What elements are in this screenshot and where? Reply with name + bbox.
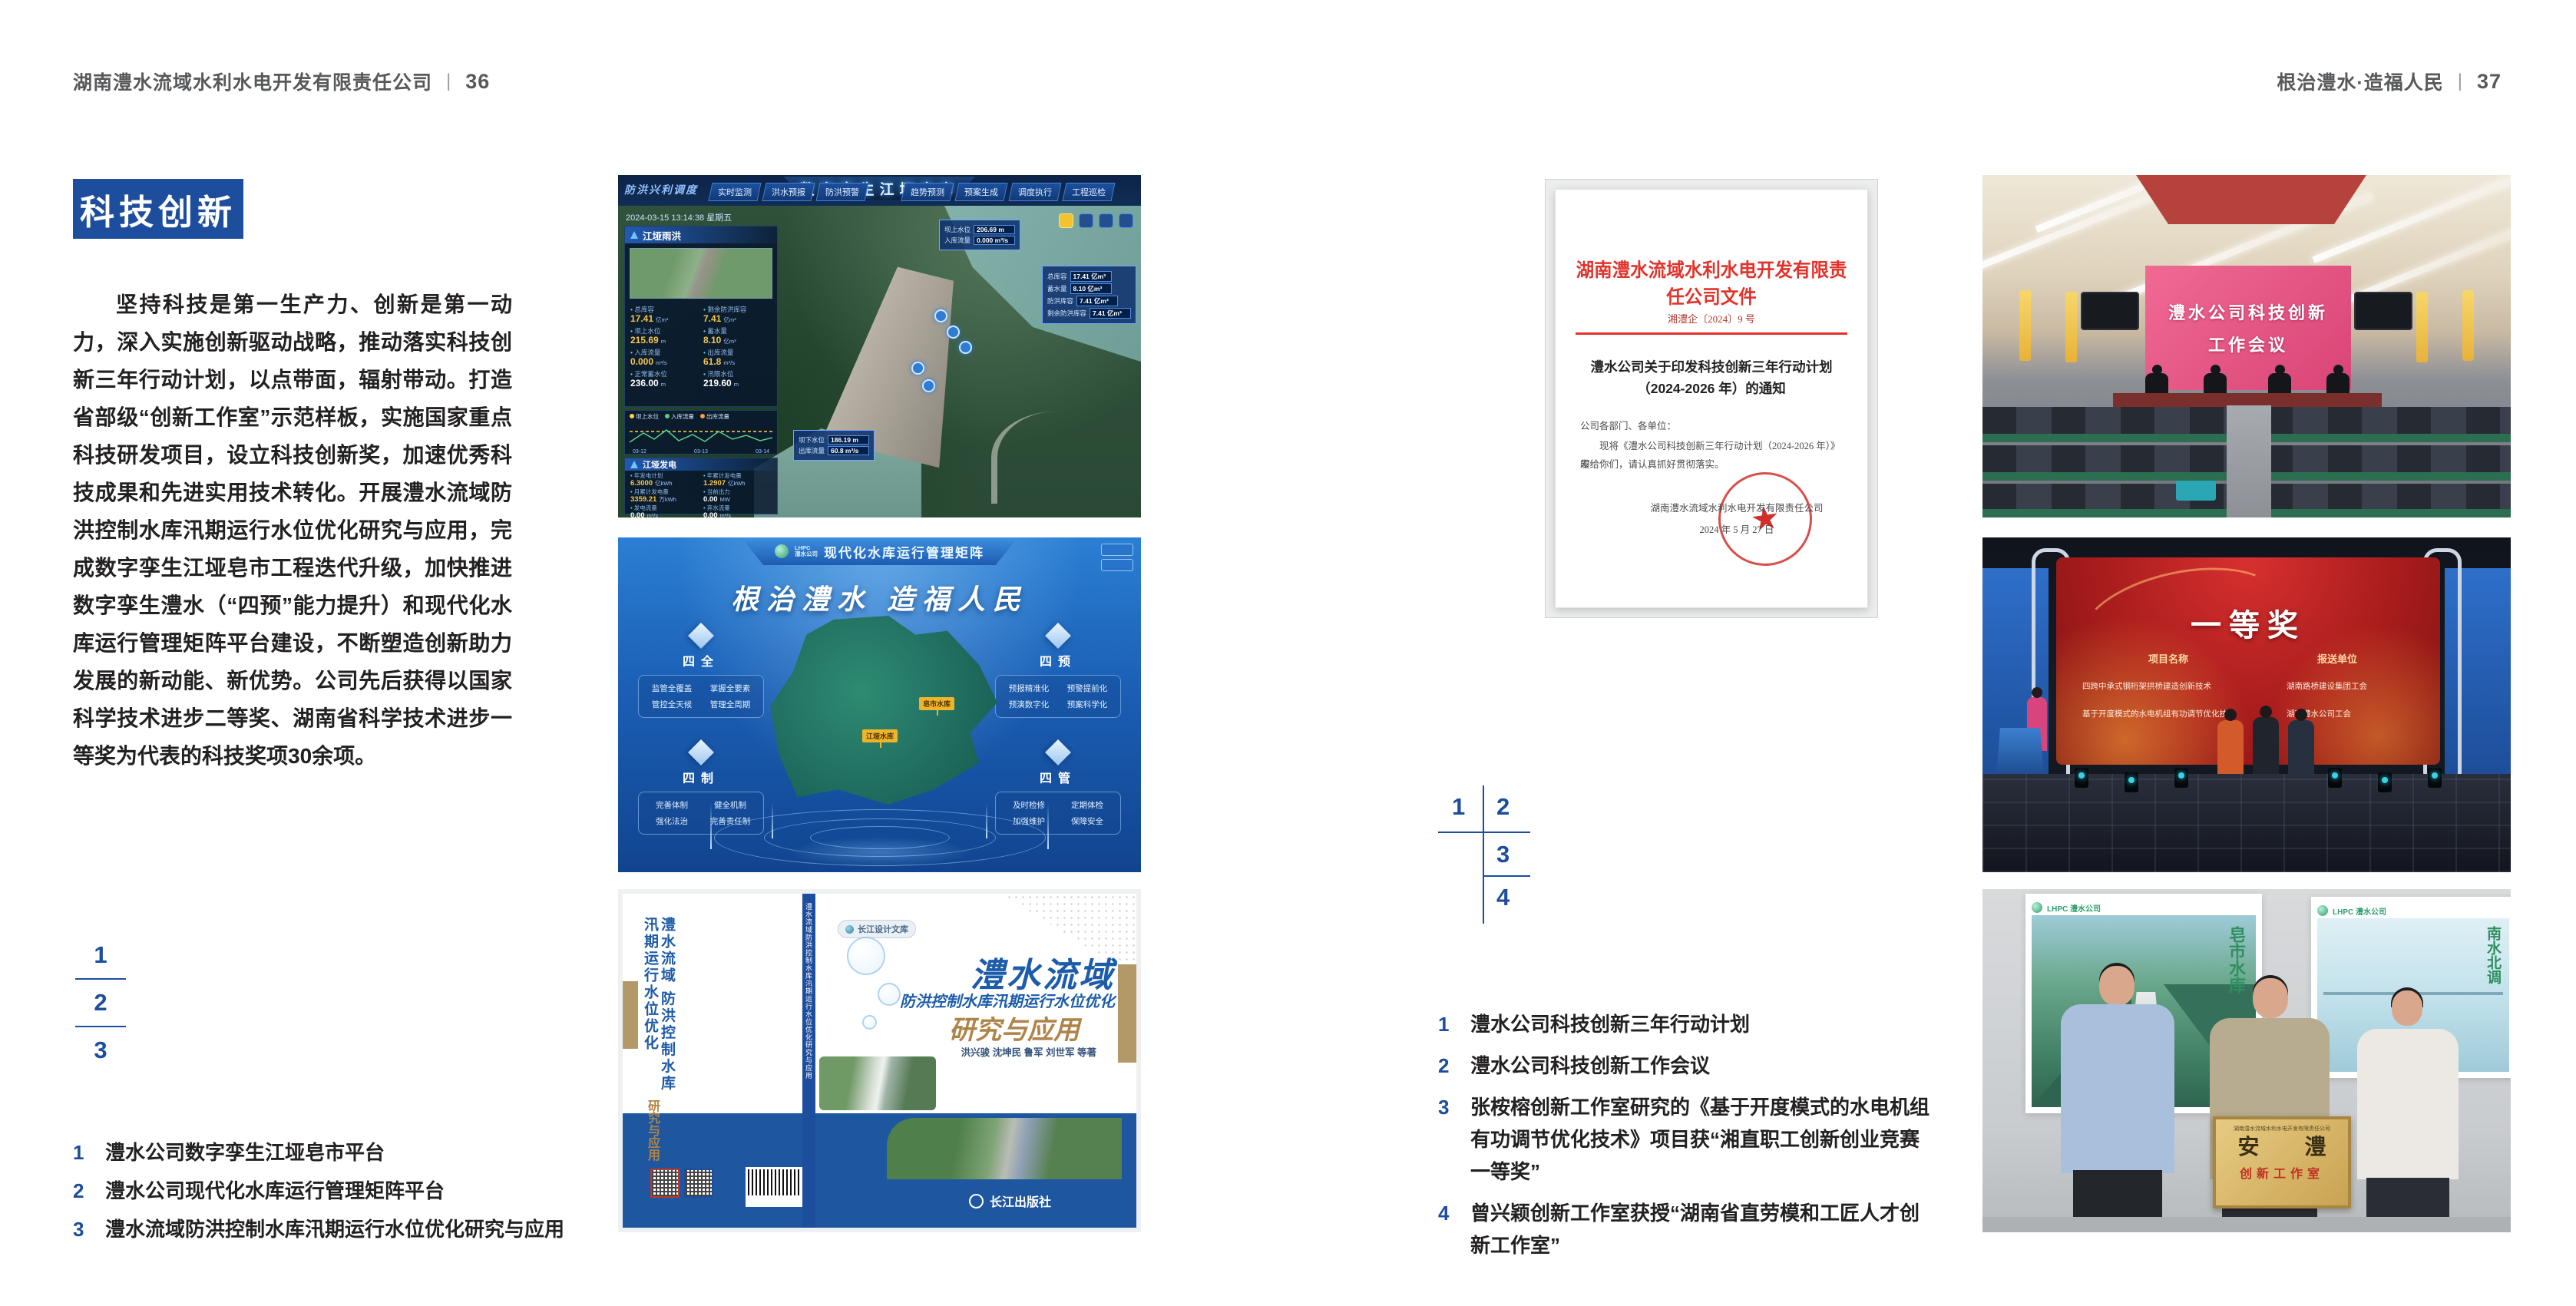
person-head: [2099, 966, 2135, 1006]
caption-text: 曾兴颖创新工作室获授“湖南省直劳模和工匠人才创新工作室”: [1470, 1197, 1930, 1261]
notice-title-line1: 澧水公司关于印发科技创新三年行动计划: [1556, 357, 1867, 376]
figure-index-number: 3: [1496, 841, 1510, 868]
tag-upstream-level: 坝上水位206.69 m 入库流量0.000 m³/s: [939, 220, 1020, 250]
index-divider-line: [1483, 875, 1530, 877]
gate-marker-icon: [934, 309, 947, 322]
person-silhouette: [2204, 373, 2227, 393]
led-screen: 一等奖 项目名称 报送单位 四跨中承式钢桁架拱桥建造创新技术 湖南路桥建设集团工…: [2056, 557, 2440, 765]
chart-x-labels: 03-1203-1303-14: [625, 449, 777, 455]
person-silhouette: [2326, 373, 2349, 393]
user-icon: [1059, 213, 1073, 228]
matrix-slogan: 根治澧水 造福人民: [618, 577, 1141, 617]
right-caption-list: 1 澧水公司科技创新三年行动计划 2 澧水公司科技创新工作会议 3 张桉榕创新工…: [1438, 1008, 1930, 1271]
matrix-group-siyu: 四预 预报精准化预警提前化 预演数字化预案科学化: [995, 627, 1121, 718]
stage-light: [2328, 768, 2342, 788]
plaque-title: 安 澧: [2216, 1132, 2348, 1163]
award-unit: 湖南路桥建设集团工会: [2287, 680, 2417, 692]
dam-photo: [819, 1056, 936, 1110]
salutation: 公司各部门、各单位：: [1580, 417, 1843, 435]
stat-cell: 月累计发电量3359.21万kWh: [630, 488, 699, 504]
stat-cell: 发电流量0.00m³/s: [630, 504, 699, 517]
figure-meeting-photo: 澧水公司科技创新 工作会议: [1982, 175, 2511, 517]
caption-item: 3 张桉榕创新工作室研究的《基于开度模式的水电机组有功调节优化技术》项目获“湘直…: [1438, 1091, 1930, 1188]
plaque-subtitle: 创新工作室: [2216, 1163, 2348, 1182]
floor: [1982, 1217, 2511, 1232]
stat-cell: 总库容17.41亿m³: [630, 305, 699, 325]
wall-lamp: [2462, 290, 2474, 361]
figure-group-photo: LHPC 澧水公司 皂市水库 LHPC 澧水公司 南水北调: [1982, 889, 2511, 1232]
wall-lamp: [2065, 292, 2077, 362]
tab-project-inspection: 工程巡检: [1062, 183, 1115, 201]
stage-light: [2428, 768, 2442, 788]
dashboard-right-tabs: 趋势预测 预案生成 调度执行 工程巡检: [903, 183, 1113, 201]
gate-marker-icon: [959, 341, 972, 354]
slogan-text: 根治澧水·造福人民: [2277, 68, 2443, 95]
panel-rain-flood: 江垭雨洪 总库容17.41亿m³ 剩余防洪库容7.41亿m³ 坝上水位215.6…: [624, 226, 778, 407]
back-cover-subtitle: 研究与应用: [643, 1099, 661, 1161]
column-unit: 报送单位: [2317, 651, 2357, 666]
qr-code: [650, 1169, 680, 1198]
rain-stats-grid: 总库容17.41亿m³ 剩余防洪库容7.41亿m³ 坝上水位215.69m 蓄水…: [625, 303, 777, 394]
stat-cell: 正常蓄水位236.00m: [630, 369, 699, 389]
figure-award-ceremony: 一等奖 项目名称 报送单位 四跨中承式钢桁架拱桥建造创新技术 湖南路桥建设集团工…: [1982, 537, 2511, 872]
person-left-body: [2061, 1004, 2174, 1173]
stat-cell: 当前出力0.00MW: [703, 488, 772, 504]
caption-number: 2: [1438, 1050, 1455, 1082]
matrix-header: LHPC澧水公司 现代化水库运行管理矩阵: [742, 537, 1018, 565]
tab-flood-warning: 防洪预警: [815, 183, 868, 201]
tan-accent-block: [1118, 964, 1136, 1063]
stat-cell: 入库流量0.000m³/s: [630, 348, 699, 368]
figure-index-right: 1 2 3 4: [1438, 785, 1530, 924]
barcode: [746, 1167, 804, 1207]
publisher-row: 长江出版社: [914, 1192, 1106, 1210]
awardee-suit: [2253, 717, 2279, 782]
toolbar-button: [1101, 544, 1133, 556]
award-title: 一等奖: [2056, 600, 2440, 645]
caption-text: 澧水公司现代化水库运行管理矩阵平台: [105, 1179, 445, 1202]
power-stats-grid: 年发电计划6.3000亿kWh 年累计发电量1.2907亿kWh 月累计发电量3…: [625, 471, 777, 517]
dashboard-corner-label: 防洪兴利调度: [624, 182, 698, 197]
light-pillar: [986, 803, 987, 838]
index-divider-line: [1438, 832, 1530, 833]
book-subtitle: 防洪控制水库汛期运行水位优化: [868, 989, 1115, 1011]
tag-downstream-level: 坝下水位186.19 m 出库流量60.8 m³/s: [793, 430, 875, 461]
company-logo-icon: [775, 544, 789, 558]
section-title: 科技创新: [73, 179, 243, 239]
wall-tv: [2354, 292, 2412, 330]
caption-number: 1: [73, 1141, 90, 1164]
map-label-zaoshi: 皂市水库: [919, 697, 954, 710]
body-paragraph: 坚持科技是第一生产力、创新是第一动力，深入实施创新驱动战略，推动落实科技创新三年…: [73, 286, 512, 775]
toolbar-button: [1101, 559, 1133, 571]
caption-text: 澧水流域防洪控制水库汛期运行水位优化研究与应用: [105, 1218, 564, 1241]
center-aisle: [2227, 405, 2271, 517]
figure-digital-twin-dashboard: 防洪兴利调度 数字孪生江垭皂市 实时监测 洪水预报 防洪预警 趋势预测 预案生成…: [618, 175, 1141, 517]
qr-code: [684, 1169, 713, 1198]
left-running-header: 湖南澧水流域水利水电开发有限责任公司 | 36: [73, 68, 490, 95]
index-divider-line: [75, 1026, 126, 1027]
person-silhouette: [2145, 373, 2168, 393]
document-number: 湘澧企〔2024〕9 号: [1556, 311, 1867, 326]
panel-title: 江垭雨洪: [625, 226, 777, 243]
left-caption-list: 1 澧水公司数字孪生江垭皂市平台 2 澧水公司现代化水库运行管理矩阵平台 3 澧…: [73, 1141, 564, 1256]
stage-floor: [1982, 774, 2511, 872]
maintenance-icon: [1045, 739, 1071, 765]
map-label-jiangya: 江垭水库: [862, 729, 898, 742]
press-logo-icon: [845, 925, 854, 934]
index-divider-line: [1483, 785, 1484, 924]
brochure-spread: 湖南澧水流域水利水电开发有限责任公司 | 36 根治澧水·造福人民 | 37 科…: [0, 0, 2576, 1306]
series-badge: 长江设计文库: [838, 920, 916, 938]
red-rule: [1576, 332, 1847, 335]
tab-dispatch-execution: 调度执行: [1008, 183, 1061, 201]
company-logo-icon: [2032, 902, 2042, 913]
matrix-title: 现代化水库运行管理矩阵: [824, 542, 984, 561]
company-name: 湖南澧水流域水利水电开发有限责任公司: [73, 68, 432, 95]
forecast-icon: [1045, 623, 1071, 649]
dashboard-left-tabs: 实时监测 洪水预报 防洪预警: [710, 183, 867, 201]
panel-title: 江垭发电: [625, 458, 777, 471]
screen-title-line2: 工作会议: [2208, 332, 2288, 356]
poster-logo-row: LHPC 澧水公司: [2032, 900, 2256, 915]
person-right-body: [2357, 1029, 2459, 1179]
ceiling-red-panel: [2136, 175, 2366, 224]
sign-date: 2024 年 5 月 27 日: [1625, 521, 1849, 536]
award-project: 四跨中承式钢桁架拱桥建造创新技术: [2082, 680, 2259, 692]
figure-index-number: 2: [1496, 793, 1510, 821]
settings-icon: [1119, 213, 1133, 228]
wall-lamp: [2416, 292, 2428, 362]
locate-icon: [1099, 213, 1113, 228]
figure-index-number: 1: [75, 940, 126, 970]
person-silhouette: [2268, 373, 2291, 393]
poster-calligraphy: 皂市水库: [2224, 926, 2248, 994]
caption-item: 2 澧水公司现代化水库运行管理矩阵平台: [73, 1179, 564, 1202]
person-head: [2253, 978, 2288, 1018]
caption-text: 张桉榕创新工作室研究的《基于开度模式的水电机组有功调节优化技术》项目获“湘直职工…: [1470, 1091, 1930, 1188]
caption-item: 1 澧水公司科技创新三年行动计划: [1438, 1008, 1930, 1040]
figure-index-number: 2: [75, 987, 126, 1018]
stage-light: [2174, 768, 2188, 788]
wall-tv: [2081, 292, 2139, 330]
caption-number: 4: [1438, 1197, 1455, 1261]
page-number-left: 36: [465, 70, 490, 94]
publisher-logo-icon: [969, 1194, 984, 1208]
screen-title-line1: 澧水公司科技创新: [2168, 299, 2328, 324]
right-running-header: 根治澧水·造福人民 | 37: [2277, 68, 2502, 95]
tissue-box: [2176, 481, 2216, 501]
stat-cell: 弃水流量0.00m³/s: [703, 504, 772, 517]
stat-cell: 年发电计划6.3000亿kWh: [630, 471, 699, 488]
stat-cell: 蓄水量8.10亿m³: [703, 326, 772, 346]
dam-photo-green: [887, 1118, 1122, 1179]
caption-text: 澧水公司数字孪生江垭皂市平台: [105, 1141, 385, 1164]
legend-item: 坝上水位: [630, 412, 659, 421]
index-divider-line: [75, 978, 126, 980]
document-page: 湖南澧水流域水利水电开发有限责任公司文件 湘澧企〔2024〕9 号 澧水公司关于…: [1555, 189, 1868, 608]
dam-thumbnail: [630, 248, 772, 299]
figure-index-number: 1: [1452, 793, 1465, 821]
header-divider: |: [446, 71, 451, 92]
plaque-organization: 湖南澧水流域水利水电开发有限责任公司: [2216, 1125, 2348, 1132]
stat-cell: 年累计发电量1.2907亿kWh: [703, 471, 772, 488]
legend-item: 出库流量: [700, 412, 729, 421]
legend-item: 入库流量: [665, 412, 694, 421]
stage-light: [2125, 772, 2138, 792]
figure-index-number: 3: [75, 1035, 126, 1066]
tab-flood-forecast: 洪水预报: [762, 183, 815, 201]
caption-item: 2 澧水公司科技创新工作会议: [1438, 1050, 1930, 1082]
caption-text: 澧水公司科技创新工作会议: [1470, 1050, 1710, 1082]
body-line: 发给你们，请认真抓好贯彻落实。: [1580, 455, 1843, 474]
gate-marker-icon: [947, 326, 960, 339]
caption-item: 3 澧水流域防洪控制水库汛期运行水位优化研究与应用: [73, 1218, 564, 1241]
column-project: 项目名称: [2148, 651, 2188, 666]
stage-light: [2378, 772, 2392, 792]
chart-legend: 坝上水位 入库流量 出库流量: [625, 411, 777, 422]
back-cover-title: 澧水流域 防洪控制水库汛期运行水位优化: [641, 917, 675, 1093]
figure-book-cover: 澧水流域 防洪控制水库汛期运行水位优化 研究与应用 澧水流域防洪控制水库汛期运行…: [618, 889, 1141, 1232]
projection-screen: 澧水公司科技创新 工作会议: [2145, 266, 2351, 390]
gate-marker-icon: [911, 362, 924, 375]
red-seal: [1712, 466, 1818, 572]
dashboard-icon-row: [1059, 213, 1133, 228]
person-head: [2392, 990, 2422, 1026]
light-pillar: [772, 803, 773, 838]
caption-item: 4 曾兴颖创新工作室获授“湖南省直劳模和工匠人才创新工作室”: [1438, 1197, 1930, 1261]
figure-index-number: 4: [1496, 884, 1510, 911]
stat-cell: 剩余防洪库容7.41亿m³: [703, 305, 772, 325]
company-logo-icon: [2317, 905, 2328, 916]
caption-number: 2: [73, 1179, 90, 1202]
watershed-map: [770, 616, 997, 805]
dashboard-timestamp: 2024-03-15 13:14:38 星期五: [626, 211, 732, 223]
light-pillar: [710, 803, 712, 849]
book-cover-sheet: 澧水流域 防洪控制水库汛期运行水位优化 研究与应用 澧水流域防洪控制水库汛期运行…: [623, 894, 1136, 1228]
tab-realtime-monitoring: 实时监测: [708, 183, 761, 201]
figure-matrix-platform: LHPC澧水公司 现代化水库运行管理矩阵 根治澧水 造福人民 四全 监管全覆盖掌…: [618, 537, 1141, 872]
stage-light: [2075, 768, 2088, 788]
document-header: 湖南澧水流域水利水电开发有限责任公司文件: [1572, 256, 1851, 309]
poster-logo-row: LHPC 澧水公司: [2317, 903, 2509, 918]
book-subtitle2: 研究与应用: [868, 1009, 1115, 1046]
matrix-group-siquan: 四全 监管全覆盖掌握全要素 管控全天候管理全周期: [638, 627, 764, 718]
gate-marker-icon: [922, 379, 935, 392]
water-level-chart: 坝上水位 入库流量 出库流量 03-1203-1303-14: [624, 410, 778, 455]
chart-plot: [625, 422, 777, 445]
signer: 湖南澧水流域水利水电开发有限责任公司: [1625, 500, 1849, 514]
book-spine: 澧水流域防洪控制水库汛期运行水位优化研究与应用: [802, 894, 815, 1228]
poster-calligraphy: 南水北调: [2482, 926, 2503, 984]
studio-plaque: 湖南澧水流域水利水电开发有限责任公司 安 澧 创新工作室: [2213, 1116, 2351, 1208]
platform-ring: [810, 826, 950, 849]
header-divider: |: [2458, 71, 2463, 92]
figure-official-document: 湖南澧水流域水利水电开发有限责任公司文件 湘澧企〔2024〕9 号 澧水公司关于…: [1545, 179, 1878, 618]
stat-cell: 汛限水位219.60m: [703, 369, 772, 389]
tan-accent-block: [623, 981, 638, 1049]
panel-power-generation: 江垭发电 年发电计划6.3000亿kWh 年累计发电量1.2907亿kWh 月累…: [624, 458, 778, 514]
stat-cell: 出库流量61.8m³/s: [703, 348, 772, 368]
tag-capacity-info: 总库容17.41 亿m³ 蓄水量8.10 亿m³ 防洪库容7.41 亿m³ 剩余…: [1042, 266, 1136, 324]
tab-trend-forecast: 趋势预测: [901, 183, 954, 201]
layers-icon: [1079, 213, 1093, 228]
caption-number: 1: [1438, 1008, 1455, 1040]
podium: [1996, 728, 2044, 775]
caption-number: 3: [73, 1218, 90, 1241]
caption-text: 澧水公司科技创新三年行动计划: [1470, 1008, 1750, 1040]
caption-number: 3: [1438, 1091, 1455, 1188]
page-number-right: 37: [2477, 70, 2502, 94]
figure-index-left: 1 2 3: [75, 940, 126, 1066]
tab-plan-generation: 预案生成: [954, 183, 1007, 201]
spine-title: 澧水流域防洪控制水库汛期运行水位优化研究与应用: [804, 903, 814, 1210]
stat-cell: 坝上水位215.69m: [630, 326, 699, 346]
monitor-icon: [688, 623, 714, 649]
wall-lamp: [2019, 290, 2031, 361]
notice-title-line2: （2024-2026 年）的通知: [1556, 379, 1867, 398]
light-pillar: [1047, 803, 1049, 849]
caption-item: 1 澧水公司数字孪生江垭皂市平台: [73, 1141, 564, 1164]
road-shape: [991, 412, 1120, 504]
institution-icon: [688, 739, 714, 765]
